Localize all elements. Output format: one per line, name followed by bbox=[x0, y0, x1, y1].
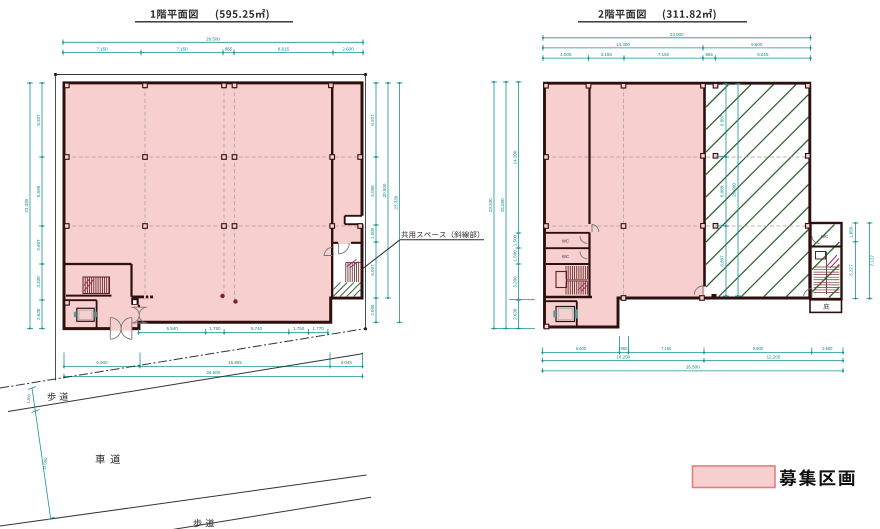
svg-text:25.500: 25.500 bbox=[500, 198, 505, 212]
svg-text:5.740: 5.740 bbox=[251, 326, 263, 331]
svg-text:11.000: 11.000 bbox=[42, 457, 49, 471]
svg-text:1.770: 1.770 bbox=[313, 326, 325, 331]
svg-text:5.098: 5.098 bbox=[36, 185, 41, 197]
svg-text:5.327: 5.327 bbox=[849, 264, 854, 276]
svg-text:7.150: 7.150 bbox=[661, 346, 672, 351]
svg-text:1.500: 1.500 bbox=[370, 227, 375, 239]
svg-text:12.200: 12.200 bbox=[767, 355, 781, 360]
svg-text:16.855: 16.855 bbox=[228, 360, 242, 365]
svg-text:3.158: 3.158 bbox=[601, 52, 613, 57]
svg-text:5.027: 5.027 bbox=[370, 264, 375, 276]
svg-text:1.750: 1.750 bbox=[293, 326, 305, 331]
svg-text:WC: WC bbox=[562, 238, 569, 243]
svg-text:23.900: 23.900 bbox=[670, 32, 684, 37]
svg-text:7.150: 7.150 bbox=[658, 52, 670, 57]
svg-text:3.330: 3.330 bbox=[36, 276, 41, 288]
svg-text:7.150: 7.150 bbox=[176, 47, 188, 52]
svg-text:6.615: 6.615 bbox=[757, 52, 769, 57]
svg-text:WC: WC bbox=[562, 254, 569, 259]
svg-text:6.807: 6.807 bbox=[719, 255, 724, 267]
svg-text:6.807: 6.807 bbox=[719, 114, 724, 126]
svg-text:14.200: 14.200 bbox=[513, 150, 518, 164]
svg-text:6.088: 6.088 bbox=[719, 185, 724, 197]
svg-text:965: 965 bbox=[705, 52, 713, 57]
svg-text:3.045: 3.045 bbox=[341, 360, 353, 365]
svg-text:26.500: 26.500 bbox=[206, 36, 220, 41]
svg-text:6.600: 6.600 bbox=[576, 346, 587, 351]
svg-text:14.300: 14.300 bbox=[616, 42, 630, 47]
svg-text:8.615: 8.615 bbox=[278, 47, 290, 52]
svg-text:20.500: 20.500 bbox=[731, 183, 736, 197]
svg-text:23.330: 23.330 bbox=[394, 195, 399, 209]
svg-text:8.927: 8.927 bbox=[370, 114, 375, 126]
svg-text:1.750: 1.750 bbox=[209, 326, 221, 331]
svg-text:1.650: 1.650 bbox=[849, 226, 854, 238]
svg-text:7.127: 7.127 bbox=[870, 255, 875, 267]
svg-text:6.600: 6.600 bbox=[96, 360, 108, 365]
svg-text:2.607: 2.607 bbox=[36, 239, 41, 251]
svg-text:5.940: 5.940 bbox=[167, 326, 179, 331]
svg-text:2.600: 2.600 bbox=[822, 346, 833, 351]
svg-text:26.500: 26.500 bbox=[686, 365, 700, 370]
svg-text:26.500: 26.500 bbox=[206, 370, 220, 375]
svg-text:1.500: 1.500 bbox=[513, 250, 518, 262]
svg-text:950: 950 bbox=[620, 346, 628, 351]
svg-text:5.098: 5.098 bbox=[370, 185, 375, 197]
svg-text:23.330: 23.330 bbox=[24, 198, 29, 212]
svg-text:2.630: 2.630 bbox=[513, 308, 518, 320]
svg-text:2.600: 2.600 bbox=[342, 47, 354, 52]
svg-text:9.600: 9.600 bbox=[753, 346, 764, 351]
svg-text:23.330: 23.330 bbox=[488, 198, 493, 212]
svg-text:1.803: 1.803 bbox=[26, 394, 31, 404]
svg-text:20.500: 20.500 bbox=[382, 183, 387, 197]
svg-text:2.630: 2.630 bbox=[36, 308, 41, 320]
svg-text:4.000: 4.000 bbox=[560, 52, 572, 57]
svg-text:1.500: 1.500 bbox=[513, 234, 518, 246]
svg-text:2.095: 2.095 bbox=[370, 304, 375, 316]
svg-text:WC: WC bbox=[821, 234, 828, 239]
svg-text:14.200: 14.200 bbox=[616, 355, 630, 360]
svg-text:3.200: 3.200 bbox=[513, 276, 518, 288]
svg-text:8.927: 8.927 bbox=[36, 114, 41, 126]
svg-text:7.150: 7.150 bbox=[96, 47, 108, 52]
svg-text:965: 965 bbox=[225, 47, 233, 52]
svg-text:9.600: 9.600 bbox=[751, 42, 763, 47]
